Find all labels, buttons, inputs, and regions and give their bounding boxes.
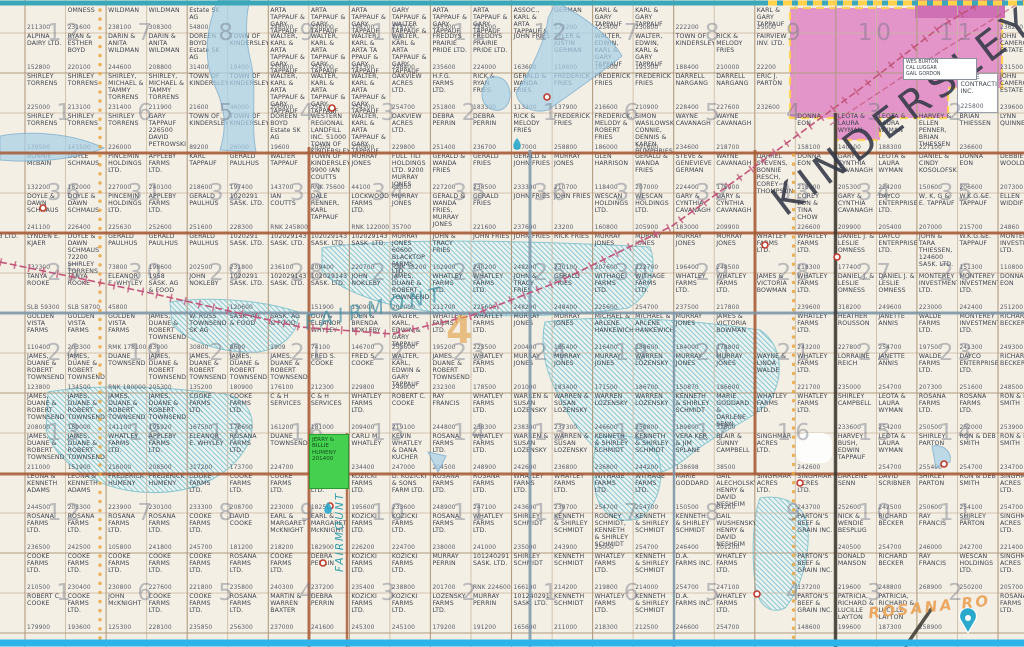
section-number: 21 xyxy=(777,340,814,366)
highlighted-parcel[interactable]: JERRY & BILLIE HUMENY 201400 xyxy=(309,434,349,489)
section-number: 15 xyxy=(858,420,895,446)
section-number: 7 xyxy=(624,500,643,526)
section-number: 5 xyxy=(218,100,237,126)
section-number: 23 xyxy=(939,340,976,366)
section-number: 20 xyxy=(696,340,733,366)
section-number: 32 xyxy=(209,180,246,206)
section-number: 8 xyxy=(705,20,724,46)
section-number: 2 xyxy=(462,100,481,126)
section-number: 11 xyxy=(939,500,976,526)
town-inset-owners: WES BURTON CAL LUGGAR GAIL GORDON xyxy=(903,58,977,80)
section-number: 26 xyxy=(939,260,976,286)
section-number: 10 xyxy=(371,500,408,526)
section-number: 30 xyxy=(614,260,651,286)
section-number: 5 xyxy=(705,100,724,126)
section-number: 32 xyxy=(696,180,733,206)
section-number: 7 xyxy=(624,20,643,46)
section-number: 25 xyxy=(533,260,570,286)
section-number: 28 xyxy=(290,260,327,286)
section-number: 27 xyxy=(858,260,895,286)
section-number: 24 xyxy=(47,340,84,366)
section-number: 18 xyxy=(614,420,651,446)
section-number: 6 xyxy=(624,580,643,606)
section-number: 34 xyxy=(858,180,895,206)
section-number: 8 xyxy=(218,20,237,46)
section-number: 15 xyxy=(371,420,408,446)
section-number: 13 xyxy=(533,420,570,446)
section-number: 11 xyxy=(452,500,489,526)
section-number: 1 xyxy=(56,100,75,126)
section-number: 16 xyxy=(777,420,814,446)
section-number: 14 xyxy=(452,420,489,446)
section-number: 25 xyxy=(47,260,84,286)
section-number: 29 xyxy=(696,260,733,286)
section-number: 24 xyxy=(533,340,570,366)
section-number: 1 xyxy=(543,100,562,126)
section-number: 4 xyxy=(299,100,318,126)
section-number: 5 xyxy=(218,580,237,606)
section-number: 9 xyxy=(299,500,318,526)
section-number: 9 xyxy=(299,20,318,46)
road-label-fairmount: FAIRMOUNT xyxy=(334,492,346,572)
section-number: 29 xyxy=(209,260,246,286)
section-number: 5 xyxy=(705,580,724,606)
section-number: 17 xyxy=(696,420,733,446)
section-number: 19 xyxy=(614,340,651,366)
section-number: 1 xyxy=(543,580,562,606)
section-number: 19 xyxy=(128,340,165,366)
section-number: 22 xyxy=(371,340,408,366)
section-number: 14 xyxy=(939,420,976,446)
section-number: 28 xyxy=(777,260,814,286)
section-number: 30 xyxy=(128,260,165,286)
section-number: 12 xyxy=(533,500,570,526)
section-number: 3 xyxy=(381,100,400,126)
section-number: 9 xyxy=(786,500,805,526)
section-number: 12 xyxy=(47,500,84,526)
section-number: 33 xyxy=(290,180,327,206)
land-ownership-map: KINDERSLEY FAIRMONT FAIRMOUNT ROSANA RO … xyxy=(0,0,1024,647)
section-number: 13 xyxy=(47,420,84,446)
section-number: 6 xyxy=(624,100,643,126)
section-number: 6 xyxy=(137,100,156,126)
section-number: 27 xyxy=(371,260,408,286)
section-number: 2 xyxy=(462,580,481,606)
section-number: 31 xyxy=(128,180,165,206)
section-number: 34 xyxy=(371,180,408,206)
section-number: 36 xyxy=(533,180,570,206)
section-number-layer: 1278910111278910111654321654323631323334… xyxy=(0,0,1024,647)
section-number: 35 xyxy=(939,180,976,206)
section-number: 4 xyxy=(299,580,318,606)
section-number: 8 xyxy=(218,500,237,526)
section-number: 11 xyxy=(452,20,489,46)
section-number: 12 xyxy=(47,20,84,46)
section-number: 10 xyxy=(858,20,895,46)
section-number: 3 xyxy=(381,580,400,606)
section-number: 10 xyxy=(858,500,895,526)
section-number: 36 xyxy=(47,180,84,206)
section-number: 7 xyxy=(137,20,156,46)
section-number: 18 xyxy=(128,420,165,446)
section-number: 35 xyxy=(452,180,489,206)
section-number: 31 xyxy=(614,180,651,206)
section-number: 17 xyxy=(209,420,246,446)
section-number: 12 xyxy=(533,20,570,46)
section-number: 1 xyxy=(56,580,75,606)
section-number: 6 xyxy=(137,580,156,606)
section-number: 10 xyxy=(371,20,408,46)
highway-numeral: 4 xyxy=(446,308,472,352)
section-number: 22 xyxy=(858,340,895,366)
section-number: 21 xyxy=(290,340,327,366)
section-number: 20 xyxy=(209,340,246,366)
section-number: 7 xyxy=(137,500,156,526)
section-number: 26 xyxy=(452,260,489,286)
section-number: 4 xyxy=(786,580,805,606)
section-number: 9 xyxy=(786,20,805,46)
section-number: 4 xyxy=(786,100,805,126)
section-number: 8 xyxy=(705,500,724,526)
